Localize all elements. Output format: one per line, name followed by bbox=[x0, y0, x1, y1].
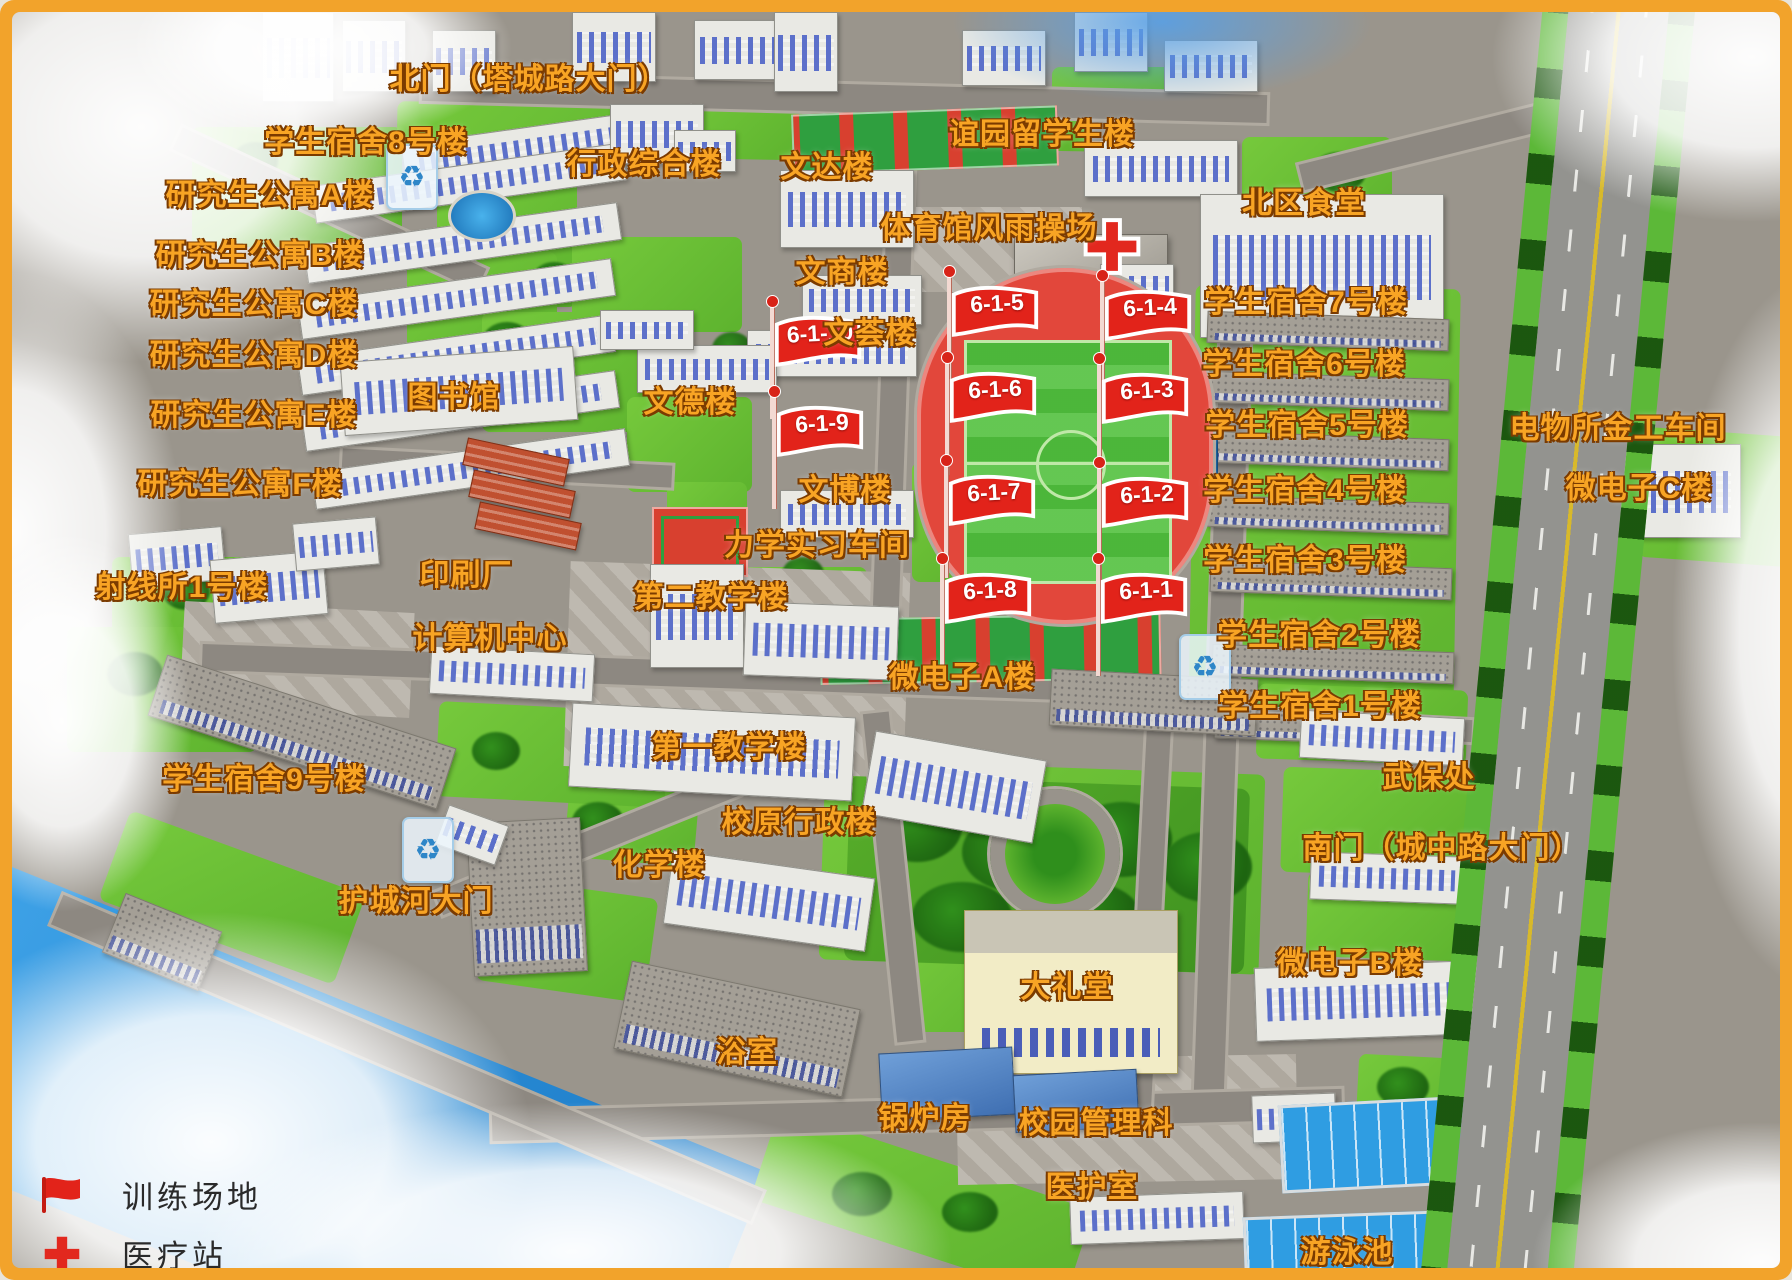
training-flag: 6-1-3 bbox=[1099, 370, 1191, 430]
building bbox=[292, 516, 380, 571]
red-flag-icon bbox=[40, 1176, 84, 1214]
red-cross-icon bbox=[40, 1235, 84, 1269]
building-label: 学生宿舍6号楼 bbox=[1202, 339, 1406, 383]
building-label: 体育馆风雨操场 bbox=[881, 203, 1098, 247]
building-label: 化学楼 bbox=[613, 840, 706, 884]
building-label: 研究生公寓A楼 bbox=[166, 170, 375, 214]
building-label: 力学实习车间 bbox=[724, 520, 910, 564]
building-label: 校原行政楼 bbox=[722, 797, 877, 841]
tree-cluster bbox=[472, 732, 520, 770]
training-flag: 6-1-6 bbox=[947, 369, 1039, 429]
cloud bbox=[1672, 272, 1780, 992]
flag-label: 6-1-5 bbox=[954, 288, 1039, 319]
garden-pond bbox=[448, 190, 516, 242]
flag-label: 6-1-3 bbox=[1104, 375, 1189, 406]
training-flag: 6-1-2 bbox=[1099, 474, 1191, 534]
training-flag: 6-1-4 bbox=[1102, 287, 1194, 347]
flag-pole-top bbox=[1093, 352, 1106, 365]
building-label: 电物所金工车间 bbox=[1510, 403, 1727, 447]
building-label: 学生宿舍2号楼 bbox=[1217, 610, 1421, 654]
building-label: 校园管理科 bbox=[1019, 1098, 1174, 1142]
building bbox=[774, 12, 838, 92]
legend-label-training: 训练场地 bbox=[122, 1172, 262, 1217]
recycle-bin-icon: ♻ bbox=[402, 817, 454, 883]
flag-label: 6-1-4 bbox=[1107, 292, 1192, 323]
training-flag: 6-1-7 bbox=[946, 472, 1038, 532]
building-label: 微电子B楼 bbox=[1277, 938, 1424, 982]
legend-row-training: 训练场地 bbox=[40, 1172, 262, 1217]
flag-label: 6-1-9 bbox=[779, 408, 864, 439]
training-flag: 6-1-1 bbox=[1098, 570, 1190, 630]
building-label: 微电子C楼 bbox=[1566, 463, 1713, 507]
building-label: 锅炉房 bbox=[879, 1093, 972, 1137]
flag-pole-top bbox=[940, 454, 953, 467]
building-label: 研究生公寓D楼 bbox=[150, 330, 359, 374]
campus-map: 北门（塔城路大门）学生宿舍8号楼研究生公寓A楼研究生公寓B楼研究生公寓C楼研究生… bbox=[12, 12, 1780, 1268]
building-label: 第二教学楼 bbox=[634, 572, 789, 616]
building-label: 学生宿舍9号楼 bbox=[162, 754, 366, 798]
flag-label: 6-1-7 bbox=[951, 477, 1036, 508]
flag-label: 6-1-8 bbox=[947, 575, 1032, 606]
building-label: 微电子A楼 bbox=[889, 652, 1036, 696]
flag-pole-top bbox=[936, 552, 949, 565]
tree-cluster bbox=[942, 1192, 998, 1232]
building-label: 学生宿舍4号楼 bbox=[1203, 465, 1407, 509]
map-legend: 训练场地 医疗站 bbox=[40, 1172, 262, 1268]
building-label: 北区食堂 bbox=[1242, 178, 1366, 222]
building-label: 南门（城中路大门） bbox=[1303, 823, 1582, 867]
flag-label: 6-1-1 bbox=[1103, 575, 1188, 606]
building-label: 研究生公寓B楼 bbox=[156, 230, 365, 274]
building-label: 射线所1号楼 bbox=[96, 562, 269, 606]
training-flag: 6-1-9 bbox=[774, 403, 866, 463]
flag-pole-top bbox=[768, 385, 781, 398]
building-label: 大礼堂 bbox=[1021, 962, 1114, 1006]
building-label: 北门（塔城路大门） bbox=[390, 54, 669, 98]
training-flag: 6-1-5 bbox=[949, 283, 1041, 343]
building-label: 学生宿舍1号楼 bbox=[1218, 681, 1422, 725]
legend-row-medical: 医疗站 bbox=[40, 1231, 262, 1268]
flag-pole-top bbox=[941, 351, 954, 364]
building bbox=[600, 310, 694, 350]
training-flag: 6-1-8 bbox=[942, 570, 1034, 630]
building-label: 文荟楼 bbox=[824, 308, 917, 352]
flag-pole-top bbox=[1096, 269, 1109, 282]
building-label: 文商楼 bbox=[796, 247, 889, 291]
flag-pole-top bbox=[1092, 552, 1105, 565]
building-label: 护城河大门 bbox=[339, 876, 494, 920]
building-label: 学生宿舍8号楼 bbox=[264, 117, 468, 161]
flag-label: 6-1-2 bbox=[1104, 479, 1189, 510]
building-label: 游泳池 bbox=[1301, 1227, 1394, 1268]
building-label: 武保处 bbox=[1383, 752, 1476, 796]
building-label: 计算机中心 bbox=[413, 613, 568, 657]
building-label: 图书馆 bbox=[408, 372, 501, 416]
building-label: 研究生公寓C楼 bbox=[150, 279, 359, 323]
building-label: 谊园留学生楼 bbox=[949, 109, 1135, 153]
flag-pole-top bbox=[943, 265, 956, 278]
building-label: 浴室 bbox=[716, 1027, 778, 1071]
building-label: 学生宿舍5号楼 bbox=[1205, 400, 1409, 444]
building-label: 印刷厂 bbox=[420, 550, 513, 594]
building-label: 文达楼 bbox=[781, 142, 874, 186]
building-label: 学生宿舍7号楼 bbox=[1204, 277, 1408, 321]
campus-map-frame: 北门（塔城路大门）学生宿舍8号楼研究生公寓A楼研究生公寓B楼研究生公寓C楼研究生… bbox=[0, 0, 1792, 1280]
building-label: 文博楼 bbox=[799, 465, 892, 509]
legend-label-medical: 医疗站 bbox=[122, 1231, 227, 1268]
building-label: 第一教学楼 bbox=[652, 722, 807, 766]
building-label: 学生宿舍3号楼 bbox=[1203, 535, 1407, 579]
building-label: 文德楼 bbox=[644, 377, 737, 421]
building-label: 医护室 bbox=[1046, 1162, 1139, 1206]
building-label: 行政综合楼 bbox=[567, 139, 722, 183]
flag-pole-top bbox=[1093, 456, 1106, 469]
flag-label: 6-1-6 bbox=[952, 374, 1037, 405]
building-label: 研究生公寓F楼 bbox=[137, 459, 342, 503]
building-label: 研究生公寓E楼 bbox=[150, 390, 357, 434]
flag-pole-top bbox=[766, 295, 779, 308]
